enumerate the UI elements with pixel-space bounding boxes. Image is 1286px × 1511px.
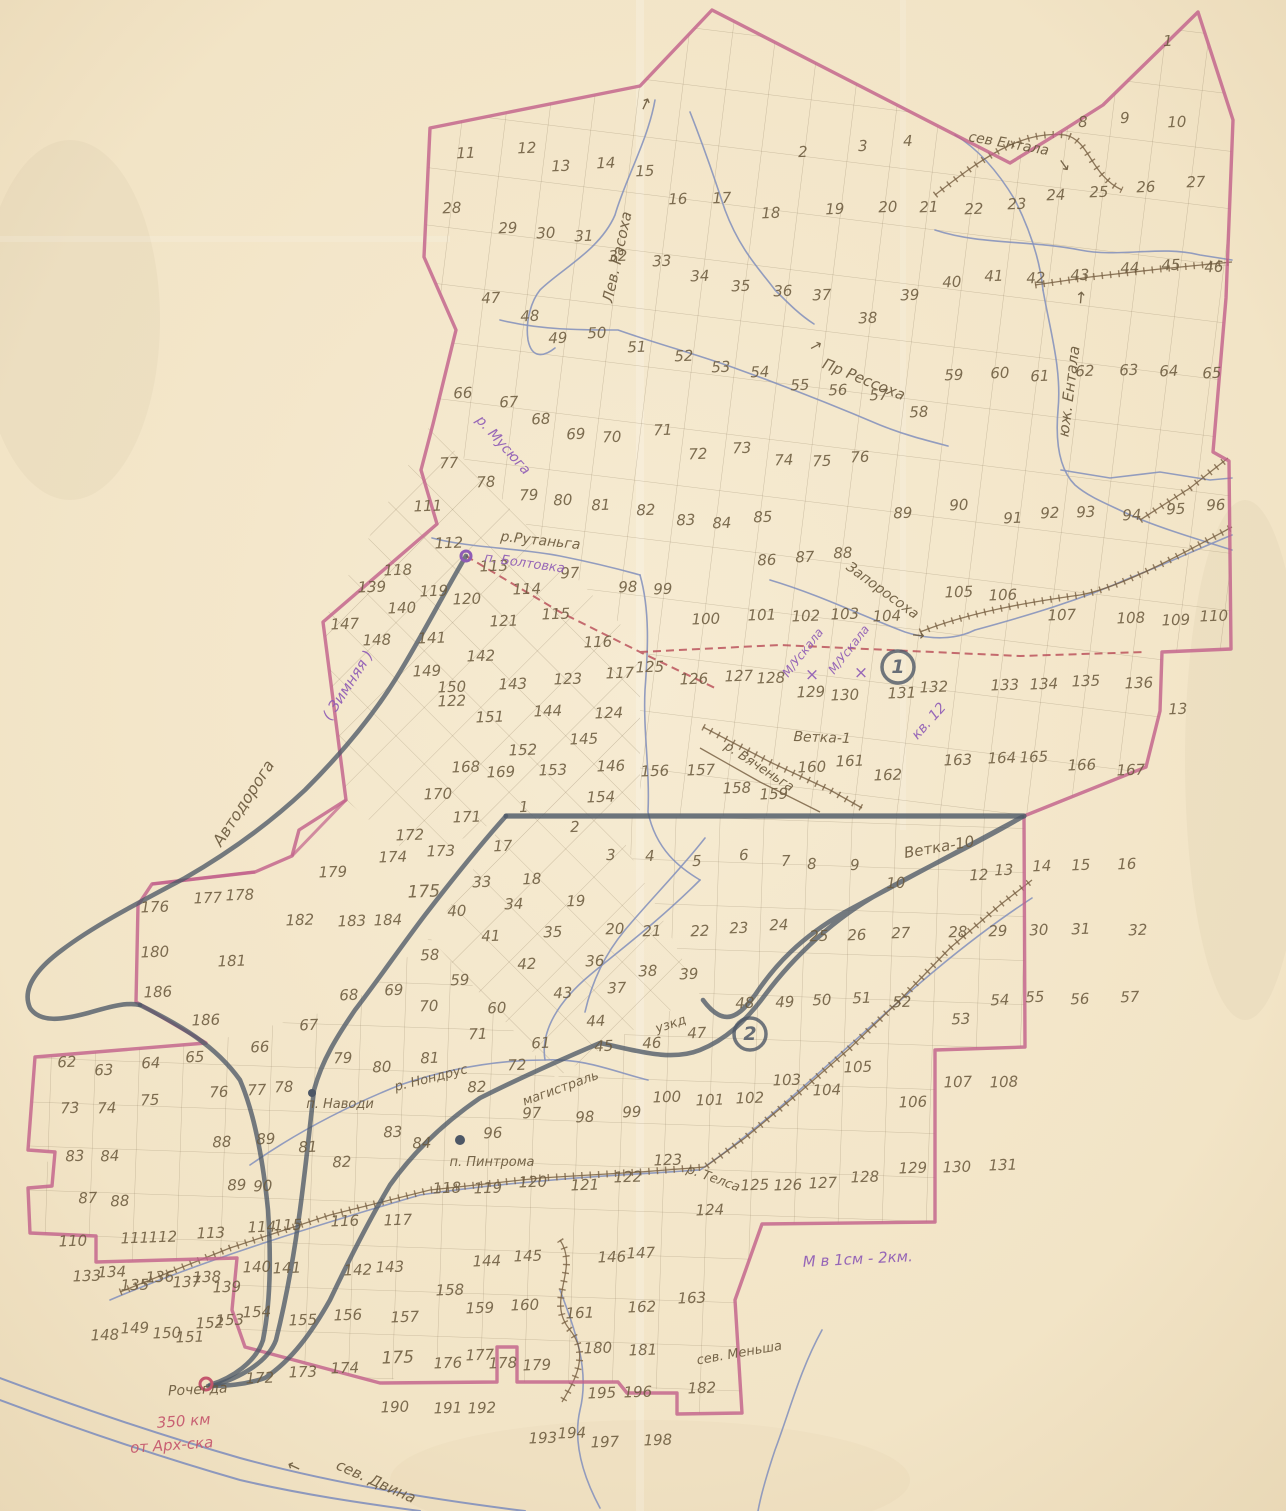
quarter-number: 117 (383, 1210, 413, 1229)
quarter-number: 96 (483, 1124, 503, 1143)
settlement-dot-marker (455, 1135, 465, 1145)
quarter-number: 118 (383, 561, 412, 580)
map-annotation: × (805, 665, 819, 685)
quarter-number: 116 (583, 633, 612, 652)
quarter-number: 115 (273, 1216, 302, 1235)
quarter-number: 39 (900, 286, 920, 305)
quarter-number: 53 (951, 1010, 971, 1029)
quarter-number: 173 (288, 1363, 317, 1382)
quarter-number: 121 (570, 1176, 599, 1195)
quarter-number: 75 (140, 1091, 160, 1110)
quarter-number: 76 (850, 448, 870, 467)
quarter-number: 83 (676, 511, 696, 530)
quarter-number: 41 (984, 267, 1004, 286)
map-annotation: п. Пинтрома (449, 1155, 534, 1170)
quarter-number: 117 (605, 663, 635, 682)
quarter-number: 130 (942, 1158, 971, 1177)
quarter-number: 33 (652, 252, 672, 271)
quarter-number: 60 (990, 364, 1010, 383)
quarter-number: 70 (419, 997, 439, 1016)
quarter-number: 127 (724, 666, 754, 685)
quarter-number: 120 (452, 590, 481, 609)
quarter-number: 52 (892, 993, 912, 1012)
quarter-number: 128 (850, 1168, 879, 1187)
quarter-number: 145 (569, 730, 598, 749)
quarter-number: 89 (893, 504, 913, 523)
quarter-number: 8 (807, 855, 817, 873)
quarter-number: 23 (1007, 195, 1027, 214)
quarter-number: 37 (607, 979, 627, 998)
quarter-number: 42 (1026, 269, 1046, 288)
quarter-number: 129 (796, 683, 825, 702)
quarter-number: 84 (712, 514, 732, 533)
quarter-number: 136 (1124, 674, 1153, 693)
quarter-number: 54 (750, 363, 770, 382)
quarter-number: 132 (919, 678, 948, 697)
quarter-number: 165 (1019, 748, 1048, 767)
quarter-number: 87 (78, 1189, 98, 1208)
quarter-number: 67 (499, 393, 519, 412)
quarter-number: 110 (1199, 607, 1228, 626)
quarter-number: 198 (643, 1431, 672, 1450)
quarter-number: 139 (357, 578, 386, 597)
quarter-number: 126 (679, 670, 708, 689)
quarter-number: 159 (465, 1299, 494, 1318)
quarter-number: 120 (518, 1173, 547, 1192)
quarter-number: 66 (453, 384, 473, 403)
circled-number-text: 1 (891, 656, 904, 678)
quarter-number: 28 (442, 199, 462, 218)
quarter-number: 105 (843, 1058, 872, 1077)
quarter-number: 141 (272, 1259, 301, 1278)
quarter-number: 80 (372, 1058, 392, 1077)
quarter-number: 17 (493, 837, 513, 856)
quarter-number: 8 (1078, 113, 1088, 131)
quarter-number: 58 (420, 946, 440, 965)
quarter-number: 110 (58, 1232, 87, 1251)
quarter-number: 58 (909, 403, 929, 422)
quarter-number: 143 (498, 675, 527, 694)
quarter-number: 79 (519, 486, 539, 505)
quarter-number: 74 (97, 1099, 117, 1118)
quarter-number: 192 (467, 1399, 496, 1418)
quarter-number: 150 (437, 678, 466, 697)
quarter-number: 125 (740, 1176, 769, 1195)
quarter-number: 100 (652, 1088, 681, 1107)
quarter-number: 88 (110, 1192, 130, 1211)
settlement-dot-marker (308, 1089, 316, 1097)
quarter-number: 101 (695, 1091, 724, 1110)
quarter-number: 183 (337, 912, 366, 931)
quarter-number: 181 (217, 952, 246, 971)
quarter-number: 2 (570, 818, 580, 836)
quarter-number: 166 (1067, 756, 1096, 775)
quarter-number: 113 (196, 1224, 225, 1243)
quarter-number: 156 (640, 762, 669, 781)
quarter-number: 9 (1120, 109, 1130, 127)
quarter-number: 181 (628, 1341, 657, 1360)
quarter-number: 158 (435, 1281, 464, 1300)
quarter-number: 27 (891, 924, 911, 943)
quarter-number: 131 (988, 1156, 1017, 1175)
quarter-number: 109 (1161, 611, 1190, 630)
quarter-number: 68 (339, 986, 359, 1005)
quarter-number: 147 (626, 1243, 656, 1262)
quarter-number: 64 (1159, 362, 1179, 381)
quarter-number: 22 (964, 200, 984, 219)
quarter-number: 155 (288, 1311, 317, 1330)
quarter-number: 7 (781, 852, 792, 870)
quarter-number: 10 (1167, 113, 1187, 132)
quarter-number: 50 (812, 991, 832, 1010)
quarter-number: 61 (531, 1034, 551, 1053)
quarter-number: 13 (994, 861, 1014, 880)
quarter-number: 144 (472, 1252, 501, 1271)
quarter-number: 19 (566, 892, 586, 911)
quarter-number: 69 (566, 425, 586, 444)
scanned-forest-quarter-map: 1234891011121314151617181920212223242526… (0, 0, 1286, 1511)
quarter-number: 1 (519, 798, 529, 816)
quarter-number: 123 (553, 670, 582, 689)
quarter-number: 118 (432, 1179, 461, 1198)
quarter-number: 186 (143, 983, 172, 1002)
quarter-number: 162 (627, 1298, 656, 1317)
quarter-number: 81 (298, 1138, 318, 1157)
quarter-number: 116 (330, 1212, 359, 1231)
quarter-number: 14 (1032, 857, 1052, 876)
quarter-number: 144 (533, 702, 562, 721)
quarter-number: 23 (729, 919, 749, 938)
quarter-number: 57 (1120, 988, 1140, 1007)
quarter-number: 24 (1046, 186, 1066, 205)
quarter-number: 102 (791, 607, 820, 626)
quarter-number: 48 (735, 994, 755, 1013)
quarter-number: 93 (1076, 503, 1096, 522)
quarter-number: 146 (596, 757, 625, 776)
quarter-number: 194 (557, 1424, 586, 1443)
quarter-number: 195 (587, 1384, 616, 1403)
quarter-number: 11 (456, 144, 476, 163)
quarter-number: 125 (635, 658, 664, 677)
quarter-number: 41 (481, 927, 501, 946)
quarter-number: 172 (395, 826, 424, 845)
quarter-number: 64 (141, 1054, 161, 1073)
quarter-number: 104 (812, 1081, 841, 1100)
quarter-number: 77 (247, 1081, 267, 1100)
quarter-number: 112 (434, 534, 463, 553)
quarter-number: 152 (508, 741, 537, 760)
quarter-number: 45 (1161, 256, 1181, 275)
quarter-number: 99 (653, 580, 673, 599)
map-annotation: 350 км (156, 1410, 211, 1432)
quarter-number: 143 (375, 1258, 404, 1277)
quarter-number: 44 (1120, 259, 1140, 278)
quarter-number: 145 (513, 1247, 542, 1266)
quarter-number: 163 (943, 751, 972, 770)
quarter-number: 66 (250, 1038, 270, 1057)
quarter-number: 15 (1071, 856, 1091, 875)
map-annotation: Ветка-1 (793, 729, 851, 747)
quarter-number: 83 (65, 1147, 85, 1166)
quarter-number: 111 (120, 1229, 149, 1248)
quarter-number: 81 (591, 496, 611, 515)
quarter-number: 88 (212, 1133, 232, 1152)
quarter-number: 178 (488, 1354, 517, 1373)
quarter-number: 101 (747, 606, 776, 625)
quarter-number: 161 (835, 752, 864, 771)
quarter-number: 52 (674, 347, 694, 366)
quarter-number: 135 (1071, 672, 1100, 691)
quarter-number: 184 (373, 911, 402, 930)
quarter-number: 78 (476, 473, 496, 492)
quarter-number: 163 (677, 1289, 706, 1308)
quarter-number: 105 (944, 583, 973, 602)
quarter-number: 22 (690, 922, 710, 941)
quarter-number: 82 (467, 1078, 487, 1097)
quarter-number: 47 (687, 1024, 707, 1043)
quarter-number: 77 (439, 454, 459, 473)
quarter-number: 43 (1070, 266, 1090, 285)
map-annotation: Рочегда (168, 1380, 228, 1399)
quarter-number: 37 (812, 286, 832, 305)
quarter-number: 173 (426, 842, 455, 861)
quarter-number: 13 (1168, 700, 1188, 719)
quarter-number: 71 (653, 421, 673, 440)
quarter-number: 119 (473, 1179, 502, 1198)
quarter-number: 100 (691, 610, 720, 629)
quarter-number: 16 (1117, 855, 1137, 874)
quarter-number: 73 (60, 1099, 80, 1118)
quarter-number: 178 (225, 886, 254, 905)
quarter-number: 154 (242, 1303, 271, 1322)
quarter-number: 69 (384, 981, 404, 1000)
quarter-number: 49 (775, 993, 795, 1012)
quarter-number: 34 (504, 895, 524, 914)
quarter-number: 153 (215, 1311, 244, 1330)
quarter-number: 6 (739, 846, 749, 864)
quarter-number: 62 (57, 1053, 77, 1072)
quarter-number: 20 (878, 198, 898, 217)
quarter-number: 63 (94, 1061, 114, 1080)
quarter-number: 124 (695, 1201, 724, 1220)
quarter-number: 16 (668, 190, 688, 209)
quarter-number: 55 (1025, 988, 1045, 1007)
quarter-number: 1 (1163, 32, 1173, 50)
quarter-number: 43 (553, 984, 573, 1003)
quarter-number: 169 (486, 763, 515, 782)
quarter-number: 51 (852, 989, 872, 1008)
quarter-number: 176 (140, 898, 169, 917)
quarter-number: 124 (594, 704, 623, 723)
quarter-number: 142 (466, 647, 495, 666)
quarter-number: 174 (378, 848, 407, 867)
quarter-number: 4 (645, 847, 655, 865)
map-canvas: 1234891011121314151617181920212223242526… (0, 0, 1286, 1511)
quarter-number: 21 (919, 198, 939, 217)
quarter-number: 32 (1128, 921, 1148, 940)
quarter-number: 193 (528, 1429, 557, 1448)
quarter-number: 21 (642, 922, 662, 941)
quarter-number: 25 (1089, 183, 1109, 202)
quarter-number: 89 (227, 1176, 247, 1195)
quarter-number: 191 (433, 1399, 462, 1418)
quarter-number: 84 (412, 1134, 432, 1153)
quarter-number: 121 (489, 612, 518, 631)
quarter-number: 106 (988, 586, 1017, 605)
quarter-number: 171 (452, 808, 481, 827)
quarter-number: 65 (1202, 364, 1222, 383)
quarter-number: 40 (942, 273, 962, 292)
circled-number-text: 2 (743, 1023, 756, 1045)
quarter-number: 36 (585, 952, 605, 971)
quarter-number: 72 (688, 445, 708, 464)
quarter-number: 31 (1071, 920, 1091, 939)
quarter-number: 51 (627, 338, 647, 357)
quarter-number: 177 (193, 888, 223, 907)
quarter-number: 142 (343, 1261, 372, 1280)
quarter-number: 29 (988, 922, 1008, 941)
quarter-number: 4 (903, 132, 913, 150)
quarter-number: 149 (120, 1319, 149, 1338)
quarter-number: 127 (808, 1173, 838, 1192)
quarter-number: 147 (330, 614, 360, 633)
quarter-number: 148 (90, 1326, 119, 1345)
quarter-number: 30 (1029, 921, 1049, 940)
quarter-number: 59 (450, 971, 470, 990)
quarter-number: 190 (380, 1398, 409, 1417)
quarter-number: 29 (498, 219, 518, 238)
quarter-number: 133 (990, 676, 1019, 695)
quarter-number: 73 (732, 439, 752, 458)
quarter-number: 67 (299, 1016, 319, 1035)
quarter-number: 175 (407, 881, 440, 902)
map-annotation: п. Наводи (306, 1097, 374, 1112)
quarter-number: 39 (679, 965, 699, 984)
quarter-number: 91 (1003, 509, 1023, 528)
quarter-number: 156 (333, 1306, 362, 1325)
quarter-number: 26 (847, 926, 867, 945)
quarter-number: 9 (850, 856, 860, 874)
quarter-number: 10 (886, 874, 906, 893)
quarter-number: 65 (185, 1048, 205, 1067)
quarter-number: 161 (565, 1304, 594, 1323)
quarter-number: 160 (797, 758, 826, 777)
quarter-number: 90 (253, 1177, 273, 1196)
quarter-number: 55 (790, 376, 810, 395)
quarter-number: 130 (830, 686, 859, 705)
quarter-number: 139 (212, 1278, 241, 1297)
quarter-number: 84 (100, 1147, 120, 1166)
quarter-number: 148 (362, 631, 391, 650)
quarter-number: 28 (948, 923, 968, 942)
quarter-number: 13 (551, 157, 571, 176)
quarter-number: 79 (333, 1049, 353, 1068)
quarter-number: 96 (1206, 496, 1226, 515)
quarter-number: 146 (597, 1248, 626, 1267)
quarter-number: 42 (517, 955, 537, 974)
map-annotation: × (854, 663, 868, 683)
quarter-number: 176 (433, 1354, 462, 1373)
quarter-number: 44 (586, 1012, 606, 1031)
map-annotation: → (1070, 290, 1090, 305)
quarter-number: 38 (858, 309, 878, 328)
quarter-number: 35 (543, 923, 563, 942)
quarter-number: 38 (638, 962, 658, 981)
quarter-number: 154 (586, 788, 615, 807)
quarter-number: 15 (635, 162, 655, 181)
map-annotation: → (911, 626, 925, 645)
quarter-number: 25 (809, 927, 829, 946)
quarter-number: 168 (451, 758, 480, 777)
quarter-number: 99 (622, 1103, 642, 1122)
quarter-number: 141 (417, 629, 446, 648)
quarter-number: 36 (773, 282, 793, 301)
quarter-number: 182 (687, 1379, 716, 1398)
quarter-number: 56 (1070, 990, 1090, 1009)
quarter-number: 63 (1119, 361, 1139, 380)
quarter-number: 24 (769, 916, 789, 935)
quarter-number: 123 (653, 1151, 682, 1170)
quarter-number: 33 (472, 873, 492, 892)
quarter-number: 162 (873, 766, 902, 785)
quarter-number: 86 (757, 551, 777, 570)
quarter-number: 172 (245, 1369, 274, 1388)
quarter-number: 46 (1204, 258, 1224, 277)
quarter-number: 94 (1122, 506, 1142, 525)
quarter-number: 68 (531, 410, 551, 429)
quarter-number: 119 (419, 582, 448, 601)
quarter-number: 108 (989, 1073, 1018, 1092)
quarter-number: 12 (969, 866, 989, 885)
quarter-number: 126 (773, 1176, 802, 1195)
quarter-number: 140 (242, 1258, 271, 1277)
quarter-number: 140 (387, 599, 416, 618)
quarter-number: 182 (285, 911, 314, 930)
quarter-number: 111 (413, 497, 442, 516)
quarter-number: 175 (381, 1347, 414, 1368)
quarter-number: 131 (887, 684, 916, 703)
quarter-number: 40 (447, 902, 467, 921)
quarter-number: 103 (830, 605, 859, 624)
quarter-number: 70 (602, 428, 622, 447)
quarter-number: 3 (606, 846, 616, 864)
quarter-number: 17 (712, 189, 732, 208)
quarter-number: 59 (944, 366, 964, 385)
quarter-number: 88 (833, 544, 853, 563)
quarter-number: 180 (140, 943, 169, 962)
quarter-number: 170 (423, 785, 452, 804)
quarter-number: 129 (898, 1159, 927, 1178)
quarter-number: 180 (583, 1339, 612, 1358)
quarter-number: 82 (636, 501, 656, 520)
quarter-number: 98 (575, 1108, 595, 1127)
quarter-number: 197 (590, 1432, 620, 1451)
quarter-number: 27 (1186, 173, 1206, 192)
quarter-number: 196 (623, 1383, 652, 1402)
quarter-number: 12 (517, 139, 537, 158)
quarter-number: 30 (536, 224, 556, 243)
quarter-number: 174 (330, 1359, 359, 1378)
quarter-number: 85 (753, 508, 773, 527)
quarter-number: 167 (1116, 760, 1146, 779)
quarter-number: 5 (692, 852, 702, 870)
quarter-number: 134 (1029, 675, 1058, 694)
quarter-number: 61 (1030, 367, 1050, 386)
quarter-number: 71 (468, 1025, 488, 1044)
quarter-number: 106 (898, 1093, 927, 1112)
quarter-number: 50 (587, 324, 607, 343)
quarter-number: 48 (520, 307, 540, 326)
